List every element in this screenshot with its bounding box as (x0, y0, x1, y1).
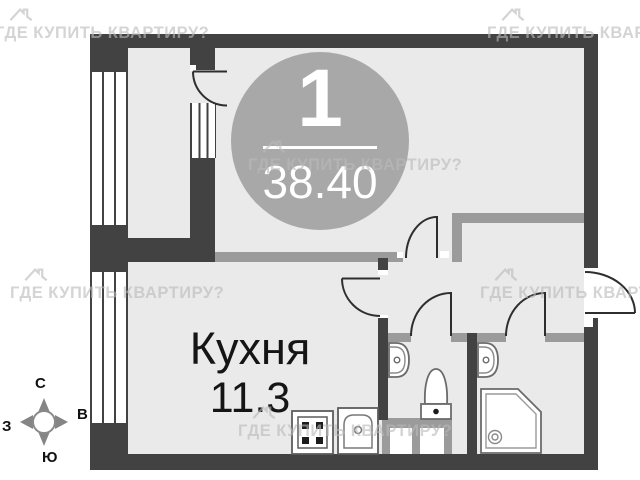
house-outline-icon (492, 266, 520, 282)
watermark: ГДЕ КУПИТЬ КВАРТИРУ? (487, 6, 640, 43)
shower-icon (481, 389, 541, 453)
compass-label-north: С (35, 375, 46, 392)
kitchen-name: Кухня (140, 326, 360, 371)
house-outline-icon (22, 266, 50, 282)
bathroom-sink-icon (389, 343, 409, 377)
watermark: ГДЕ КУПИТЬ КВАРТИРУ? (480, 266, 640, 303)
house-outline-icon (7, 6, 35, 22)
living-door-arc (406, 217, 437, 258)
compass-label-east: В (77, 406, 88, 423)
floor-plan: 1 38.40 Кухня 11.3 С Ю З В ГДЕ КУПИТЬ КВ… (0, 0, 640, 480)
watermark: ГДЕ КУПИТЬ КВАРТИРУ? (238, 404, 453, 441)
bathroom-left-door-arc (411, 293, 451, 336)
house-outline-icon (250, 404, 278, 420)
bathroom-sink-icon (478, 343, 498, 377)
house-outline-icon (260, 138, 288, 154)
house-outline-icon (499, 6, 527, 22)
compass-label-south: Ю (42, 449, 57, 466)
apartment-number: 1 (231, 58, 409, 140)
watermark: ГДЕ КУПИТЬ КВАРТИРУ? (0, 6, 210, 43)
watermark: ГДЕ КУПИТЬ КВАРТИРУ? (248, 138, 463, 175)
compass-label-west: З (2, 418, 11, 435)
balcony-door-arc (193, 72, 227, 106)
kitchen-door-arc (342, 279, 380, 317)
watermark: ГДЕ КУПИТЬ КВАРТИРУ? (10, 266, 225, 303)
